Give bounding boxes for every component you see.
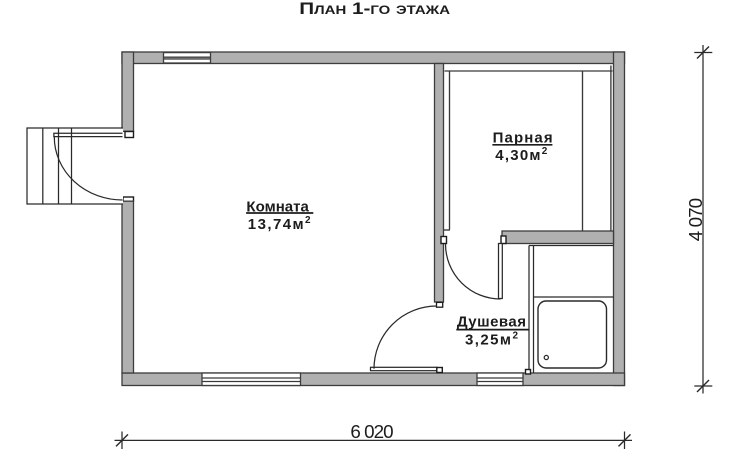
svg-text:План 1-го этажа: План 1-го этажа xyxy=(299,0,450,18)
svg-text:Душевая: Душевая xyxy=(457,313,526,330)
svg-text:13,74м2: 13,74м2 xyxy=(248,215,311,233)
svg-text:6 020: 6 020 xyxy=(350,421,393,442)
svg-text:3,25м2: 3,25м2 xyxy=(465,331,518,349)
svg-text:4 070: 4 070 xyxy=(685,198,706,241)
svg-text:4,30м2: 4,30м2 xyxy=(495,146,547,164)
svg-text:Парная: Парная xyxy=(493,129,553,146)
